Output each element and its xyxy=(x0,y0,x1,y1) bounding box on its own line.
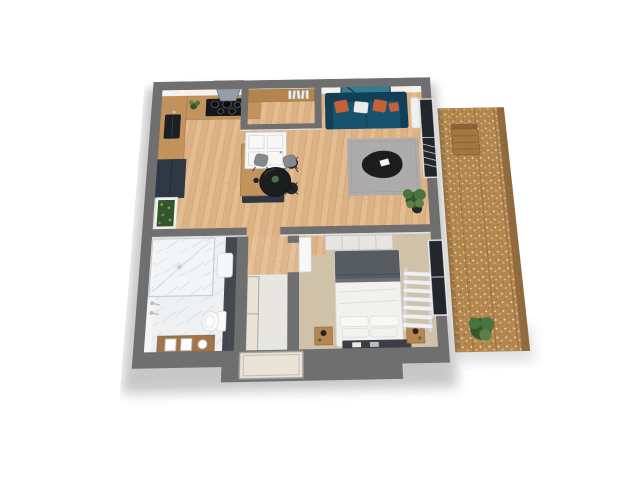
hallway xyxy=(246,277,259,353)
mirror xyxy=(180,339,191,351)
orange-pillow xyxy=(388,102,399,112)
sink-basin xyxy=(198,340,207,349)
pillow xyxy=(340,316,369,326)
orange-pillow xyxy=(372,99,387,113)
floorplan-canvas xyxy=(0,0,640,480)
bed-blanket xyxy=(335,250,401,283)
white-pillow xyxy=(353,101,368,113)
bedroom-door xyxy=(299,237,311,272)
floorplan-render xyxy=(119,70,564,409)
wall-basin xyxy=(217,253,233,277)
closet-panels xyxy=(246,277,259,353)
orange-pillow xyxy=(334,99,349,113)
mirror xyxy=(165,339,177,351)
pillow xyxy=(370,316,399,326)
toilet xyxy=(202,311,227,331)
floorplan-3d-wrapper xyxy=(119,70,564,409)
pillow xyxy=(342,328,369,337)
pillow xyxy=(370,328,397,337)
nightstand xyxy=(315,327,333,345)
sofa xyxy=(325,92,409,130)
balcony-chair xyxy=(451,124,480,155)
curtain xyxy=(410,98,420,128)
